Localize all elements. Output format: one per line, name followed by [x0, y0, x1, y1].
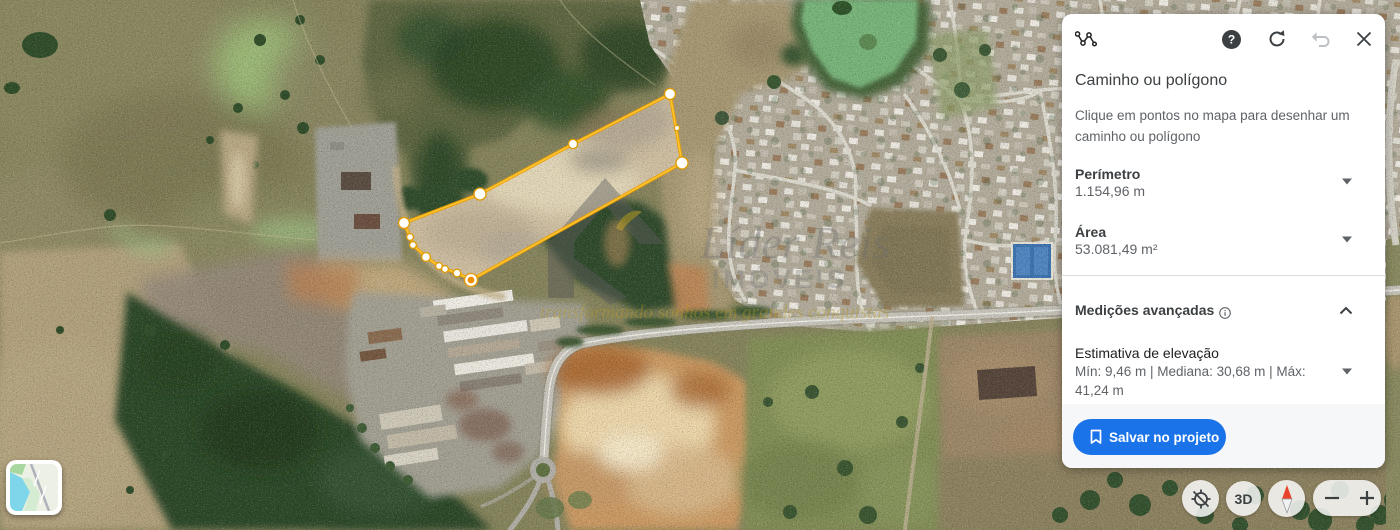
svg-text:?: ? — [1228, 33, 1235, 47]
svg-text:transformando sonhos em grande: transformando sonhos em grandes conquist… — [540, 302, 889, 323]
svg-text:Líder Reis: Líder Reis — [699, 217, 890, 268]
svg-text:IMÓVEIS: IMÓVEIS — [712, 264, 848, 294]
